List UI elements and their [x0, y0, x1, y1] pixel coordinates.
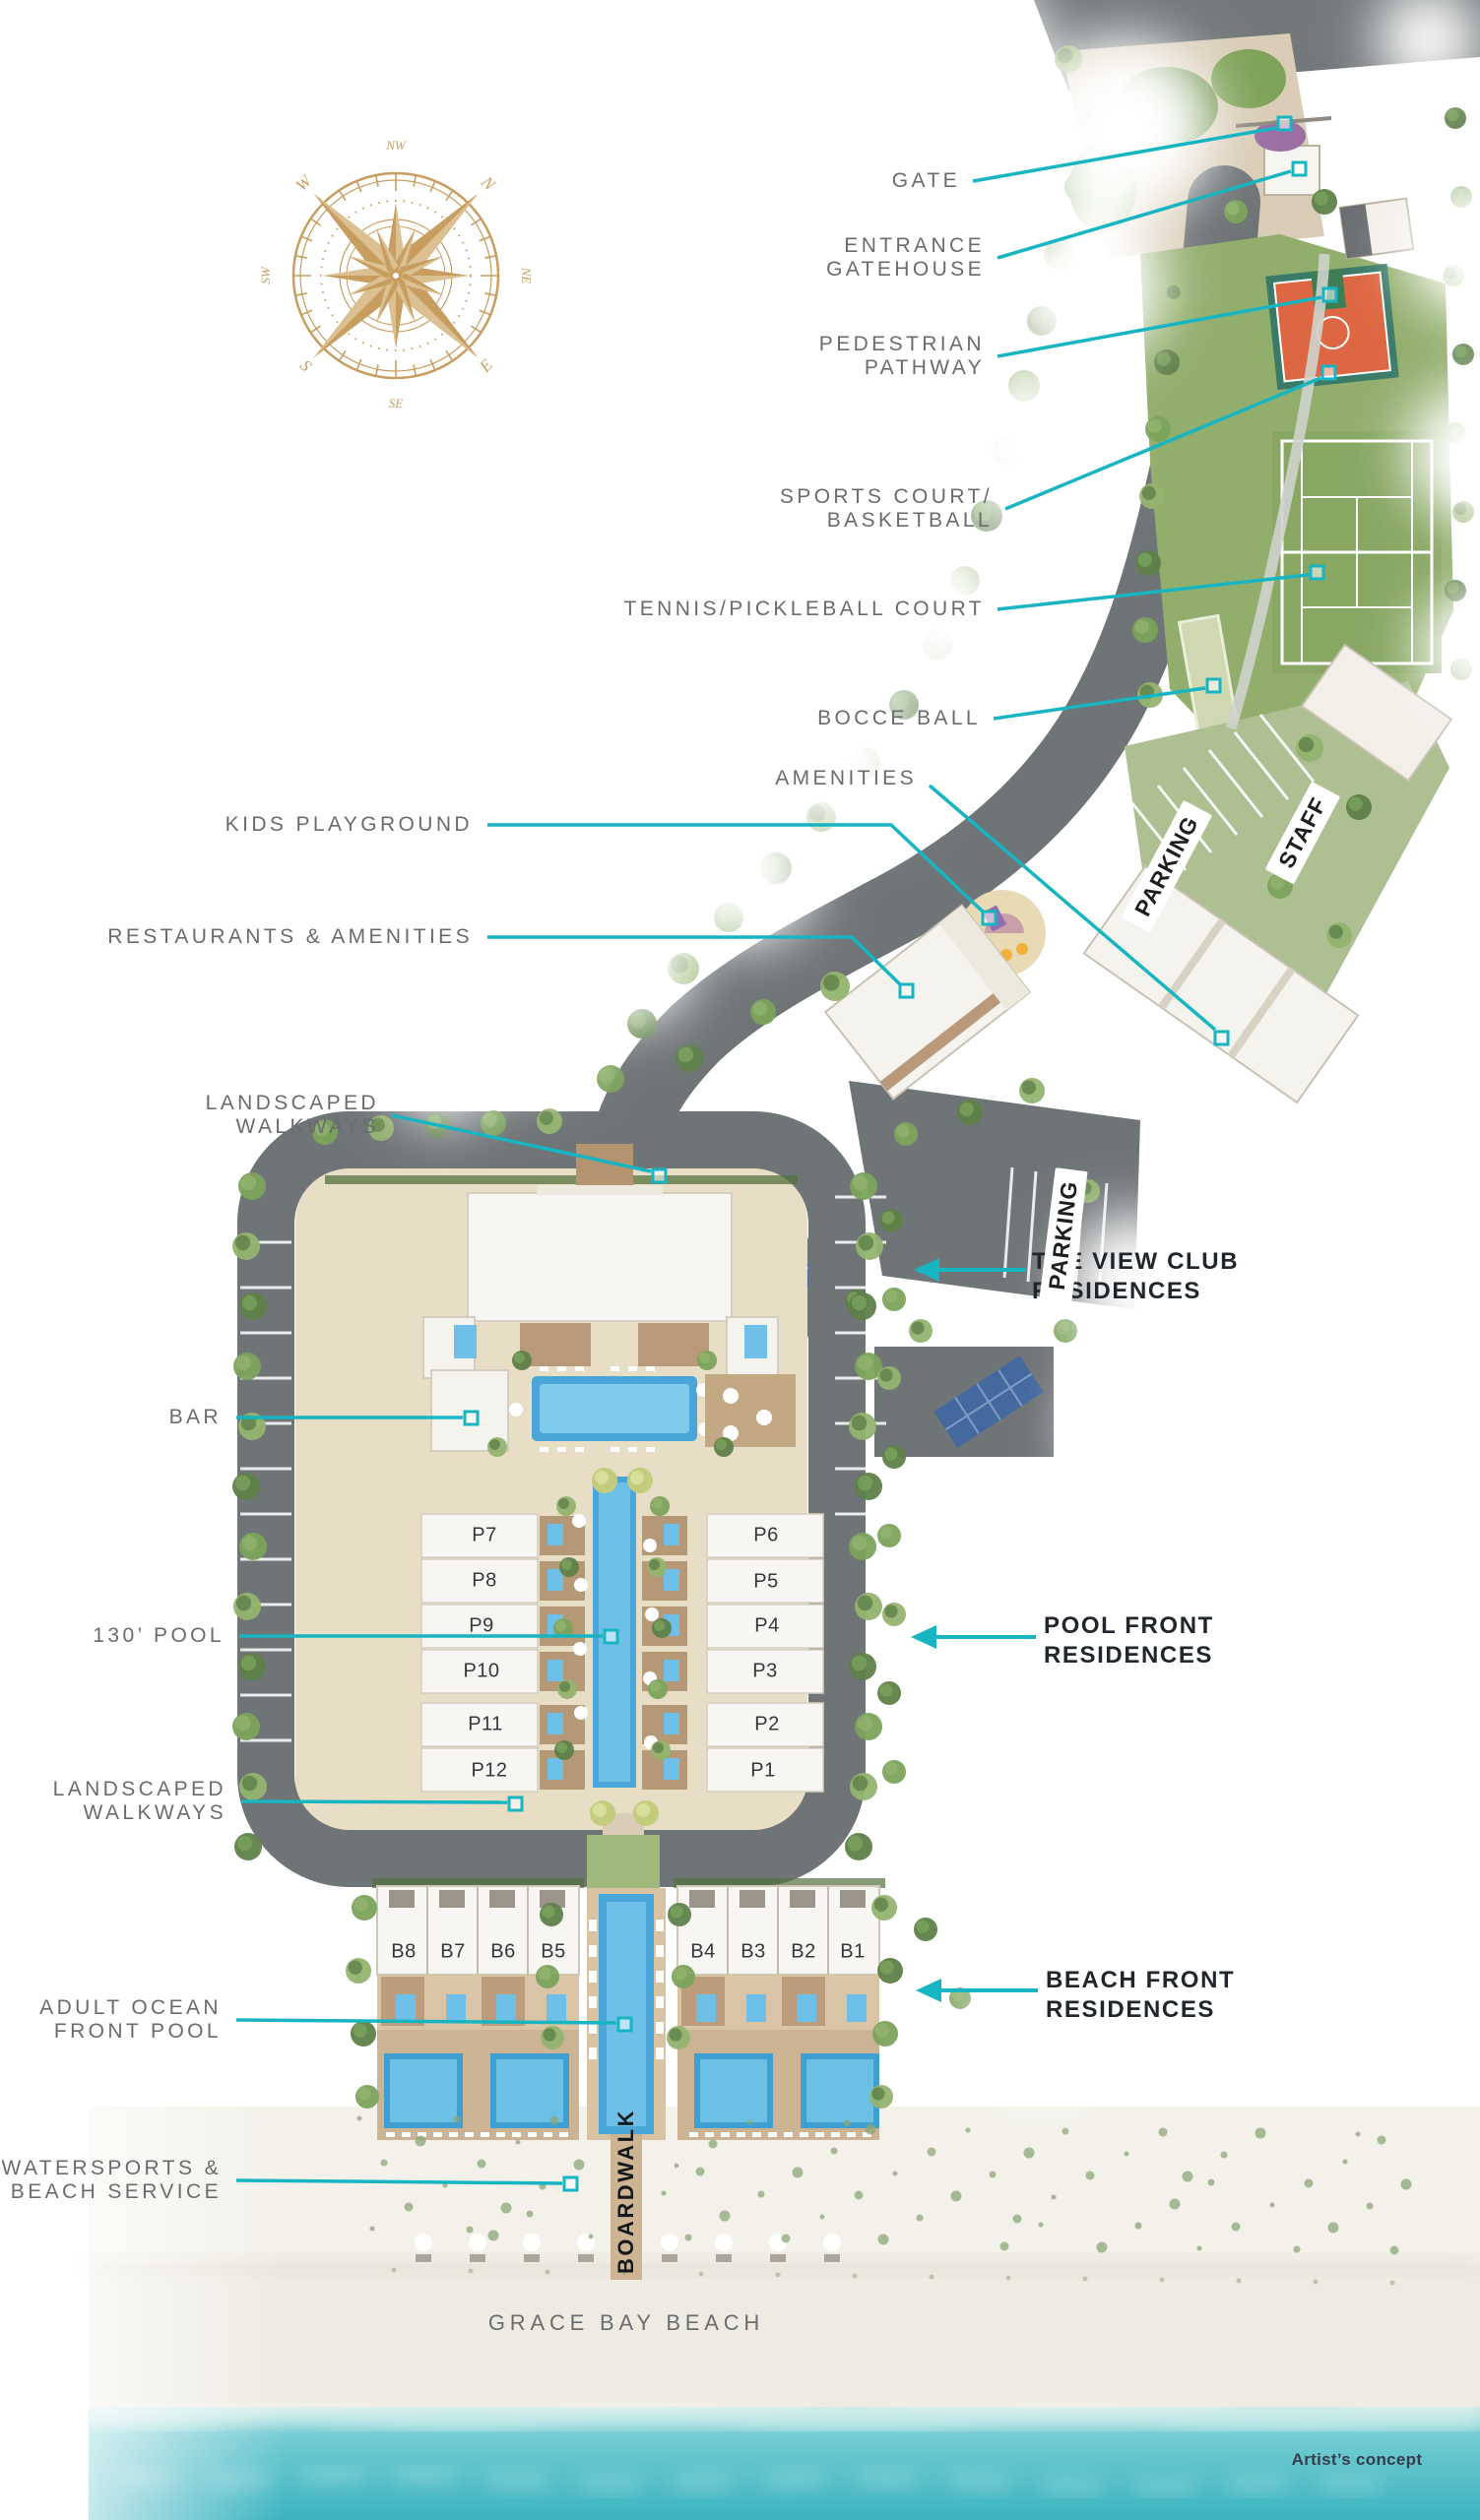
callout-tennis-pickleball-court-line: TENNIS/PICKLEBALL COURT [624, 598, 985, 621]
beach-name-label: GRACE BAY BEACH [488, 2310, 764, 2336]
unit-label-P4: P4 [754, 1615, 779, 1638]
marker-landscaped-south [509, 1797, 522, 1810]
label-pool-front-residences-line: RESIDENCES [1044, 1641, 1214, 1670]
callout-adult-ocean-front-pool: ADULT OCEANFRONT POOL [39, 1996, 222, 2044]
unit-label-P9: P9 [469, 1615, 493, 1638]
compass-rose: NWNNEESESSWW [258, 138, 534, 410]
leader-landscaped-south [241, 1801, 507, 1802]
marker-kids-playground [983, 912, 996, 924]
callout-bar-line: BAR [169, 1406, 222, 1429]
callout-entrance-gatehouse-line: GATEHOUSE [826, 258, 985, 282]
unit-label-B1: B1 [840, 1941, 865, 1964]
adult-pool [587, 1888, 666, 2140]
site-plan-canvas: NWNNEESESSWW GATEENTRANCEGATEHOUSEPEDEST… [0, 0, 1480, 2520]
callout-entrance-gatehouse: ENTRANCEGATEHOUSE [826, 234, 985, 282]
callout-pool-130: 130’ POOL [93, 1624, 225, 1648]
marker-pedestrian-pathway [1323, 288, 1336, 301]
unit-label-B2: B2 [791, 1941, 815, 1964]
label-beach-front-residences: BEACH FRONTRESIDENCES [1046, 1966, 1235, 2025]
arrow-beach-front [916, 1979, 941, 2002]
callout-pedestrian-pathway: PEDESTRIANPATHWAY [819, 333, 985, 380]
unit-label-P2: P2 [754, 1714, 779, 1736]
unit-label-P10: P10 [463, 1661, 499, 1683]
callout-sports-court-basketball-line: SPORTS COURT/ [780, 485, 993, 509]
callout-watersports-beach-service: WATERSPORTS &BEACH SERVICE [2, 2157, 223, 2204]
compass-direction-N: N [477, 172, 499, 195]
callout-landscaped-walkways-north-line: WALKWAYS [206, 1115, 379, 1139]
sports-lawn [1140, 234, 1453, 750]
label-pool-front-residences: POOL FRONTRESIDENCES [1044, 1611, 1214, 1670]
ocean [89, 2407, 1480, 2520]
marker-adult-pool [618, 2018, 631, 2031]
unit-label-B3: B3 [740, 1941, 765, 1964]
callout-gate: GATE [892, 169, 960, 193]
callout-restaurants-amenities-line: RESTAURANTS & AMENITIES [107, 925, 473, 949]
callout-pool-130-line: 130’ POOL [93, 1624, 225, 1648]
callout-gate-line: GATE [892, 169, 960, 193]
callout-kids-playground: KIDS PLAYGROUND [225, 813, 473, 837]
callout-amenities: AMENITIES [775, 767, 917, 790]
callout-bocce-ball: BOCCE BALL [817, 707, 981, 730]
unit-label-P7: P7 [472, 1525, 496, 1547]
callout-adult-ocean-front-pool-line: FRONT POOL [39, 2020, 222, 2044]
unit-label-B7: B7 [440, 1941, 465, 1964]
marker-sports-court [1322, 366, 1335, 379]
unit-label-B5: B5 [541, 1941, 565, 1964]
callout-adult-ocean-front-pool-line: ADULT OCEAN [39, 1996, 222, 2020]
marker-restaurants [900, 984, 913, 997]
label-beach-front-residences-line: RESIDENCES [1046, 1995, 1235, 2025]
unit-label-P12: P12 [471, 1760, 507, 1783]
court-pavilion [1340, 199, 1414, 259]
marker-amenities [1215, 1032, 1228, 1044]
callout-pedestrian-pathway-line: PEDESTRIAN [819, 333, 985, 356]
callout-amenities-line: AMENITIES [775, 767, 917, 790]
unit-label-P5: P5 [753, 1571, 778, 1594]
artist-concept-note: Artist’s concept [1292, 2450, 1423, 2470]
callout-landscaped-walkways-south-line: WALKWAYS [53, 1801, 226, 1825]
compass-direction-NW: NW [385, 138, 407, 153]
unit-label-P8: P8 [472, 1570, 496, 1593]
callout-landscaped-walkways-north: LANDSCAPEDWALKWAYS [206, 1092, 379, 1139]
marker-watersports [564, 2177, 577, 2190]
site-plan-map: NWNNEESESSWW [0, 0, 1480, 2520]
callout-sports-court-basketball: SPORTS COURT/BASKETBALL [780, 485, 993, 533]
marker-landscaped-north [653, 1169, 666, 1182]
unit-label-P1: P1 [750, 1760, 775, 1783]
compass-direction-SE: SE [389, 396, 404, 410]
map-label-boardwalk: BOARDWALK [613, 2109, 639, 2274]
unit-label-B8: B8 [391, 1941, 416, 1964]
sand-left-fade [0, 2087, 286, 2520]
callout-landscaped-walkways-south: LANDSCAPEDWALKWAYS [53, 1778, 226, 1825]
label-pool-front-residences-line: POOL FRONT [1044, 1611, 1214, 1641]
unit-label-B6: B6 [490, 1941, 515, 1964]
compass-direction-NE: NE [519, 267, 534, 284]
unit-label-P3: P3 [752, 1661, 777, 1683]
marker-entrance-gatehouse [1293, 162, 1306, 175]
south-lawn [587, 1835, 660, 1890]
callout-bar: BAR [169, 1406, 222, 1429]
marker-pool-130 [605, 1630, 617, 1643]
compass-direction-E: E [475, 355, 496, 377]
unit-label-B4: B4 [690, 1941, 715, 1964]
callout-pedestrian-pathway-line: PATHWAY [819, 356, 985, 380]
marker-gate [1278, 117, 1291, 130]
callout-watersports-beach-service-line: WATERSPORTS & [2, 2157, 223, 2180]
club-pool [509, 1366, 796, 1452]
compass-direction-W: W [292, 170, 317, 195]
callout-watersports-beach-service-line: BEACH SERVICE [2, 2180, 223, 2204]
arrow-pool-front [911, 1625, 936, 1649]
callout-landscaped-walkways-north-line: LANDSCAPED [206, 1092, 379, 1115]
callout-tennis-pickleball-court: TENNIS/PICKLEBALL COURT [624, 598, 985, 621]
callout-bocce-ball-line: BOCCE BALL [817, 707, 981, 730]
compass-direction-SW: SW [258, 266, 273, 284]
callout-landscaped-walkways-south-line: LANDSCAPED [53, 1778, 226, 1801]
callout-entrance-gatehouse-line: ENTRANCE [826, 234, 985, 258]
unit-label-P6: P6 [753, 1525, 778, 1547]
callout-restaurants-amenities: RESTAURANTS & AMENITIES [107, 925, 473, 949]
compass-direction-S: S [296, 356, 316, 376]
marker-bar [465, 1412, 478, 1424]
marker-bocce-ball [1207, 679, 1220, 692]
callout-kids-playground-line: KIDS PLAYGROUND [225, 813, 473, 837]
marker-tennis-court [1311, 566, 1323, 579]
unit-label-P11: P11 [468, 1714, 503, 1736]
callout-sports-court-basketball-line: BASKETBALL [780, 509, 993, 533]
label-beach-front-residences-line: BEACH FRONT [1046, 1966, 1235, 1995]
